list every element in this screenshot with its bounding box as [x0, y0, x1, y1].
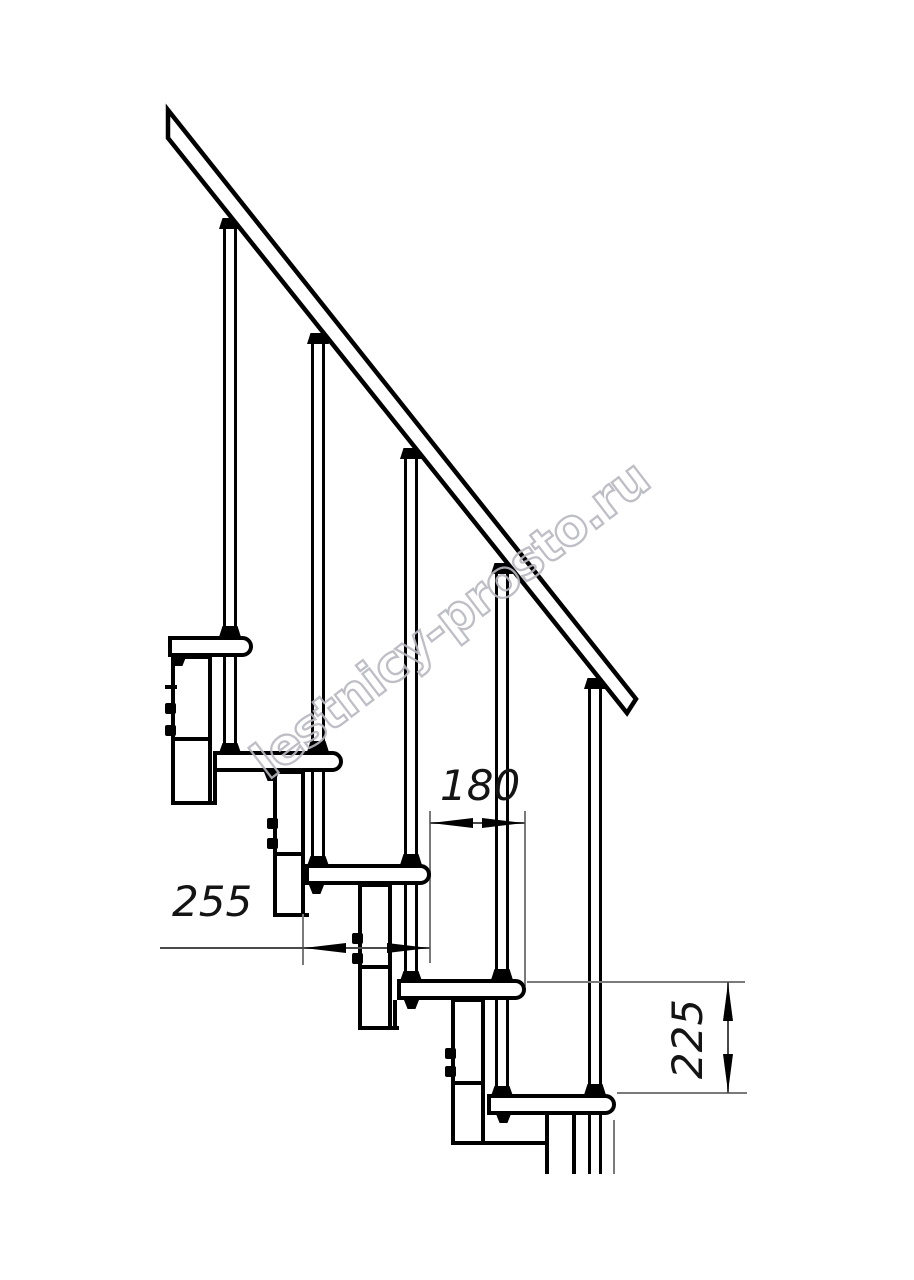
- tread-2: [213, 751, 343, 772]
- support-module-3: [358, 883, 392, 1030]
- module-4-bolt-b: [445, 1066, 456, 1077]
- rail-collar-3: [400, 448, 422, 459]
- support-module-4: [451, 998, 485, 1145]
- rail-collar-2: [307, 333, 329, 344]
- dim-label-255: 255: [172, 881, 252, 923]
- tread-4: [397, 979, 526, 1000]
- base-collar-5: [584, 1084, 606, 1095]
- staircase-drawing: 180 255 225 lestnicy-prosto.ru: [0, 0, 914, 1280]
- baluster-2: [311, 342, 325, 752]
- dim-label-225: 225: [667, 989, 713, 1089]
- module-2-bolt-b: [267, 838, 278, 849]
- ext-line-nose-5: [613, 1120, 615, 1174]
- tread-5-bolt: [496, 1114, 511, 1123]
- rail-collar-5: [584, 678, 606, 689]
- module-1-stub: [165, 685, 177, 689]
- under-tube-5: [588, 1113, 602, 1174]
- module-1-bolt-a: [165, 703, 176, 714]
- tread-3-bolt: [309, 885, 324, 894]
- module-1-bolt-b: [165, 725, 176, 736]
- module-4-bolt-a: [445, 1048, 456, 1059]
- support-module-5: [545, 1111, 576, 1174]
- module-2-riser: [301, 883, 305, 917]
- baluster-1: [223, 227, 237, 637]
- support-module-1: [171, 655, 212, 805]
- module-2-joint: [273, 852, 305, 856]
- base-collar-2: [307, 741, 329, 752]
- ext-line-180-left: [429, 811, 431, 963]
- arrowhead-225-bottom: [723, 1054, 733, 1092]
- tread-3: [305, 864, 431, 885]
- under-tube-3: [404, 883, 418, 982]
- under-collar-4: [491, 1086, 513, 1096]
- tread-5: [487, 1094, 616, 1115]
- arrowhead-225-top: [723, 983, 733, 1021]
- module-3-joint: [358, 965, 392, 969]
- dim-label-180: 180: [440, 765, 520, 807]
- module-2-bolt-a: [267, 818, 278, 829]
- rail-collar-1: [219, 218, 241, 229]
- under-collar-3: [400, 971, 422, 981]
- under-tube-4: [495, 998, 509, 1097]
- under-collar-1: [219, 743, 241, 753]
- under-collar-2: [307, 856, 329, 866]
- base-collar-3: [400, 854, 422, 865]
- tread-1: [168, 636, 253, 657]
- base-collar-4: [491, 969, 513, 980]
- module-1-riser: [213, 770, 217, 805]
- module-1-bracket: [171, 801, 217, 805]
- ext-line-225-top: [527, 981, 745, 983]
- arrowhead-255-left: [304, 943, 346, 953]
- under-tube-2: [311, 770, 325, 867]
- base-collar-1: [219, 626, 241, 637]
- module-3-bolt-a: [352, 933, 363, 944]
- under-tube-1: [223, 655, 237, 754]
- module-4-bracket: [451, 1141, 547, 1145]
- ext-line-180-right: [524, 811, 526, 986]
- ext-line-255-left: [302, 914, 304, 965]
- tread-4-bolt: [404, 1000, 419, 1009]
- rail-collar-4: [491, 563, 513, 574]
- baluster-5: [588, 687, 602, 1095]
- module-1-joint: [171, 737, 212, 741]
- module-3-bolt-b: [352, 953, 363, 964]
- baluster-3: [404, 457, 418, 865]
- module-4-joint: [451, 1081, 485, 1085]
- arrowhead-180-left: [431, 818, 473, 828]
- module-3-riser: [393, 1000, 397, 1030]
